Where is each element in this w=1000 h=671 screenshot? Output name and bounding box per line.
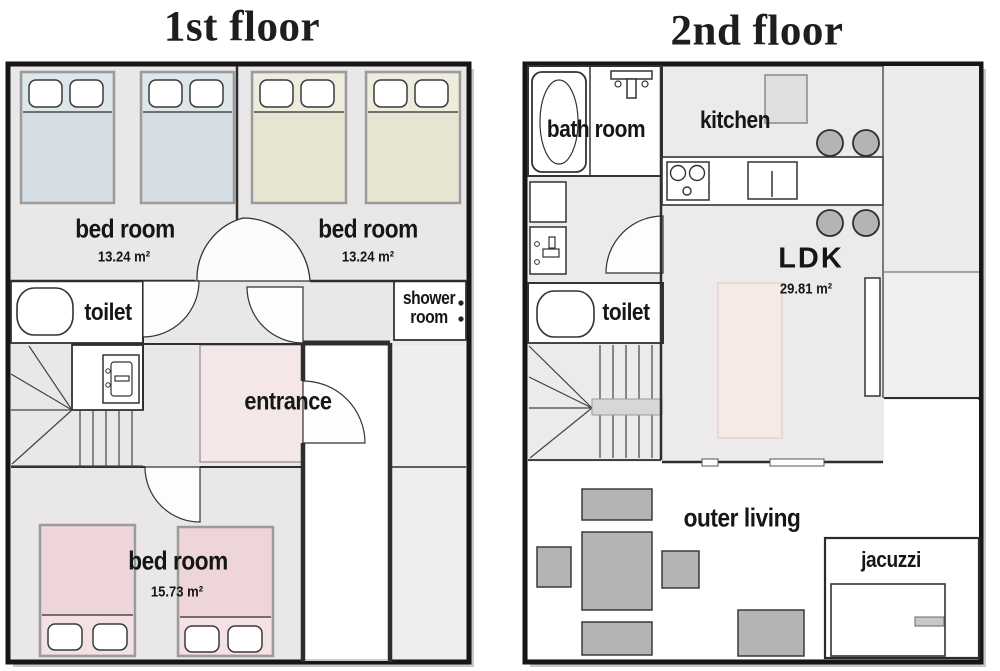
room-label-kitchen: kitchen (700, 107, 770, 135)
area-label-bedroom-nw: 13.24 m² (98, 249, 150, 266)
fridge-icon (765, 75, 807, 123)
floor-plan-page: 1st floor 2nd floor bed room 13.24 m² be… (0, 0, 1000, 671)
washbasin-icon (103, 355, 139, 403)
bed-icon (252, 72, 346, 203)
bed-icon (141, 72, 234, 203)
bed-icon (40, 525, 135, 656)
storage-box-icon (530, 182, 566, 222)
room-label-toilet-f1: toilet (84, 299, 131, 327)
toilet-bowl-icon (17, 288, 73, 335)
floor1-title: 1st floor (164, 3, 320, 52)
floor2-side-area-upper (884, 66, 979, 272)
room-label-bathroom: bath room (547, 116, 645, 144)
window-notch (770, 459, 824, 466)
area-label-ldk: 29.81 m² (780, 281, 832, 298)
room-label-toilet-f2: toilet (602, 299, 649, 327)
area-label-bedroom-ne: 13.24 m² (342, 249, 394, 266)
floor1-plan (8, 64, 474, 667)
area-label-bedroom-s: 15.73 m² (151, 584, 203, 601)
floor2-side-area-lower (884, 272, 979, 398)
room-label-entrance: entrance (244, 388, 331, 417)
room-label-outer-living: outer living (684, 503, 801, 534)
room-label-bedroom-ne: bed room (318, 214, 418, 245)
tv-board-icon (865, 278, 880, 396)
floor2-title: 2nd floor (671, 7, 844, 56)
kitchen-sink-icon (748, 162, 797, 199)
stove-icon (667, 162, 709, 200)
room-label-bedroom-nw: bed room (75, 214, 175, 245)
rug-icon (718, 283, 782, 438)
floor2-plan (525, 64, 986, 667)
room-label-jacuzzi: jacuzzi (861, 547, 921, 573)
washbasin-icon (530, 227, 566, 274)
toilet-bowl-icon (537, 291, 594, 337)
window-notch (702, 459, 718, 466)
room-label-ldk: LDK (778, 243, 844, 276)
stair-landing (592, 399, 662, 415)
floor1-corridor (392, 345, 466, 659)
bed-icon (366, 72, 460, 203)
room-label-shower: showerroom (403, 289, 455, 327)
floor2-outer-living-area2 (884, 400, 979, 462)
room-label-bedroom-s: bed room (128, 546, 228, 577)
bed-icon (21, 72, 114, 203)
